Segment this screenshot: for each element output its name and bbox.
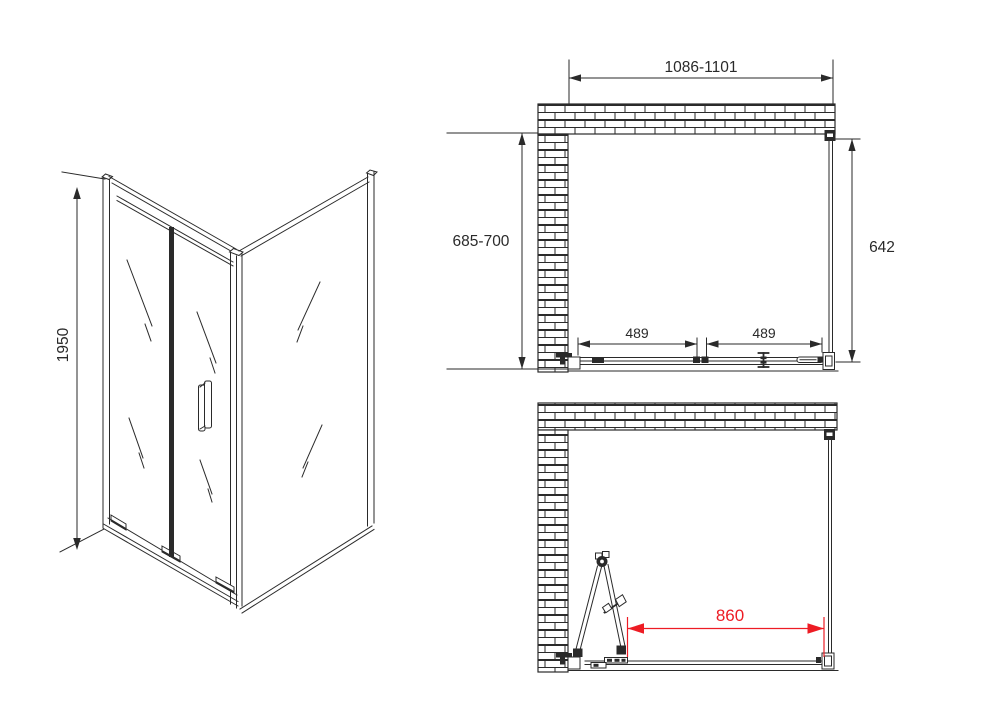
shower-enclosure-drawing: 1950 bbox=[0, 0, 1000, 707]
right-panel-dimension-label: 489 bbox=[752, 325, 776, 341]
brick-wall-top-open bbox=[538, 403, 837, 430]
height-dimension: 1950 bbox=[55, 172, 105, 552]
brick-wall-left bbox=[538, 134, 568, 372]
right-corner-bracket bbox=[818, 353, 835, 370]
door-handle bbox=[199, 381, 212, 431]
opening-dimension-label: 860 bbox=[716, 606, 744, 625]
panel-dimensions: 489 489 bbox=[578, 325, 822, 356]
opening-dimension: 860 bbox=[628, 606, 825, 657]
center-roller-left bbox=[693, 357, 700, 364]
side-glass-panel bbox=[239, 170, 377, 613]
side-height-dimension-label: 642 bbox=[869, 239, 895, 256]
pivot-hinge bbox=[596, 552, 610, 568]
height-dimension-label: 1950 bbox=[55, 327, 72, 362]
glass-reflection-marks-side bbox=[297, 282, 322, 477]
center-roller-right bbox=[702, 357, 709, 364]
left-roller bbox=[592, 357, 604, 363]
width-dimension-label: 1086-1101 bbox=[665, 59, 738, 76]
glass-reflection-marks-left bbox=[127, 260, 152, 468]
plan-view-closed: 1086-1101 685-700 642 bbox=[447, 59, 895, 372]
depth-dimension-label: 685-700 bbox=[453, 233, 510, 250]
bifold-door-panels bbox=[127, 227, 216, 557]
fixed-panel-plan-open bbox=[816, 429, 835, 669]
right-post-cap bbox=[367, 170, 378, 176]
left-panel-dimension-label: 489 bbox=[625, 325, 649, 341]
side-height-dimension: 642 bbox=[836, 139, 895, 362]
perspective-view: 1950 bbox=[55, 170, 377, 613]
left-end-bracket bbox=[568, 357, 580, 369]
brick-wall-top bbox=[538, 104, 835, 134]
width-dimension: 1086-1101 bbox=[569, 59, 833, 103]
left-end-bracket-open bbox=[568, 657, 580, 669]
bifold-door-open bbox=[573, 552, 628, 669]
bottom-guide-open bbox=[591, 658, 628, 669]
up-arrowhead bbox=[73, 187, 81, 199]
center-stile bbox=[169, 227, 174, 557]
technical-drawing-page: 1950 bbox=[0, 0, 1000, 707]
fixed-panel-plan bbox=[825, 130, 836, 357]
plan-view-open: 860 bbox=[538, 403, 838, 672]
brick-wall-left-open bbox=[538, 430, 568, 672]
